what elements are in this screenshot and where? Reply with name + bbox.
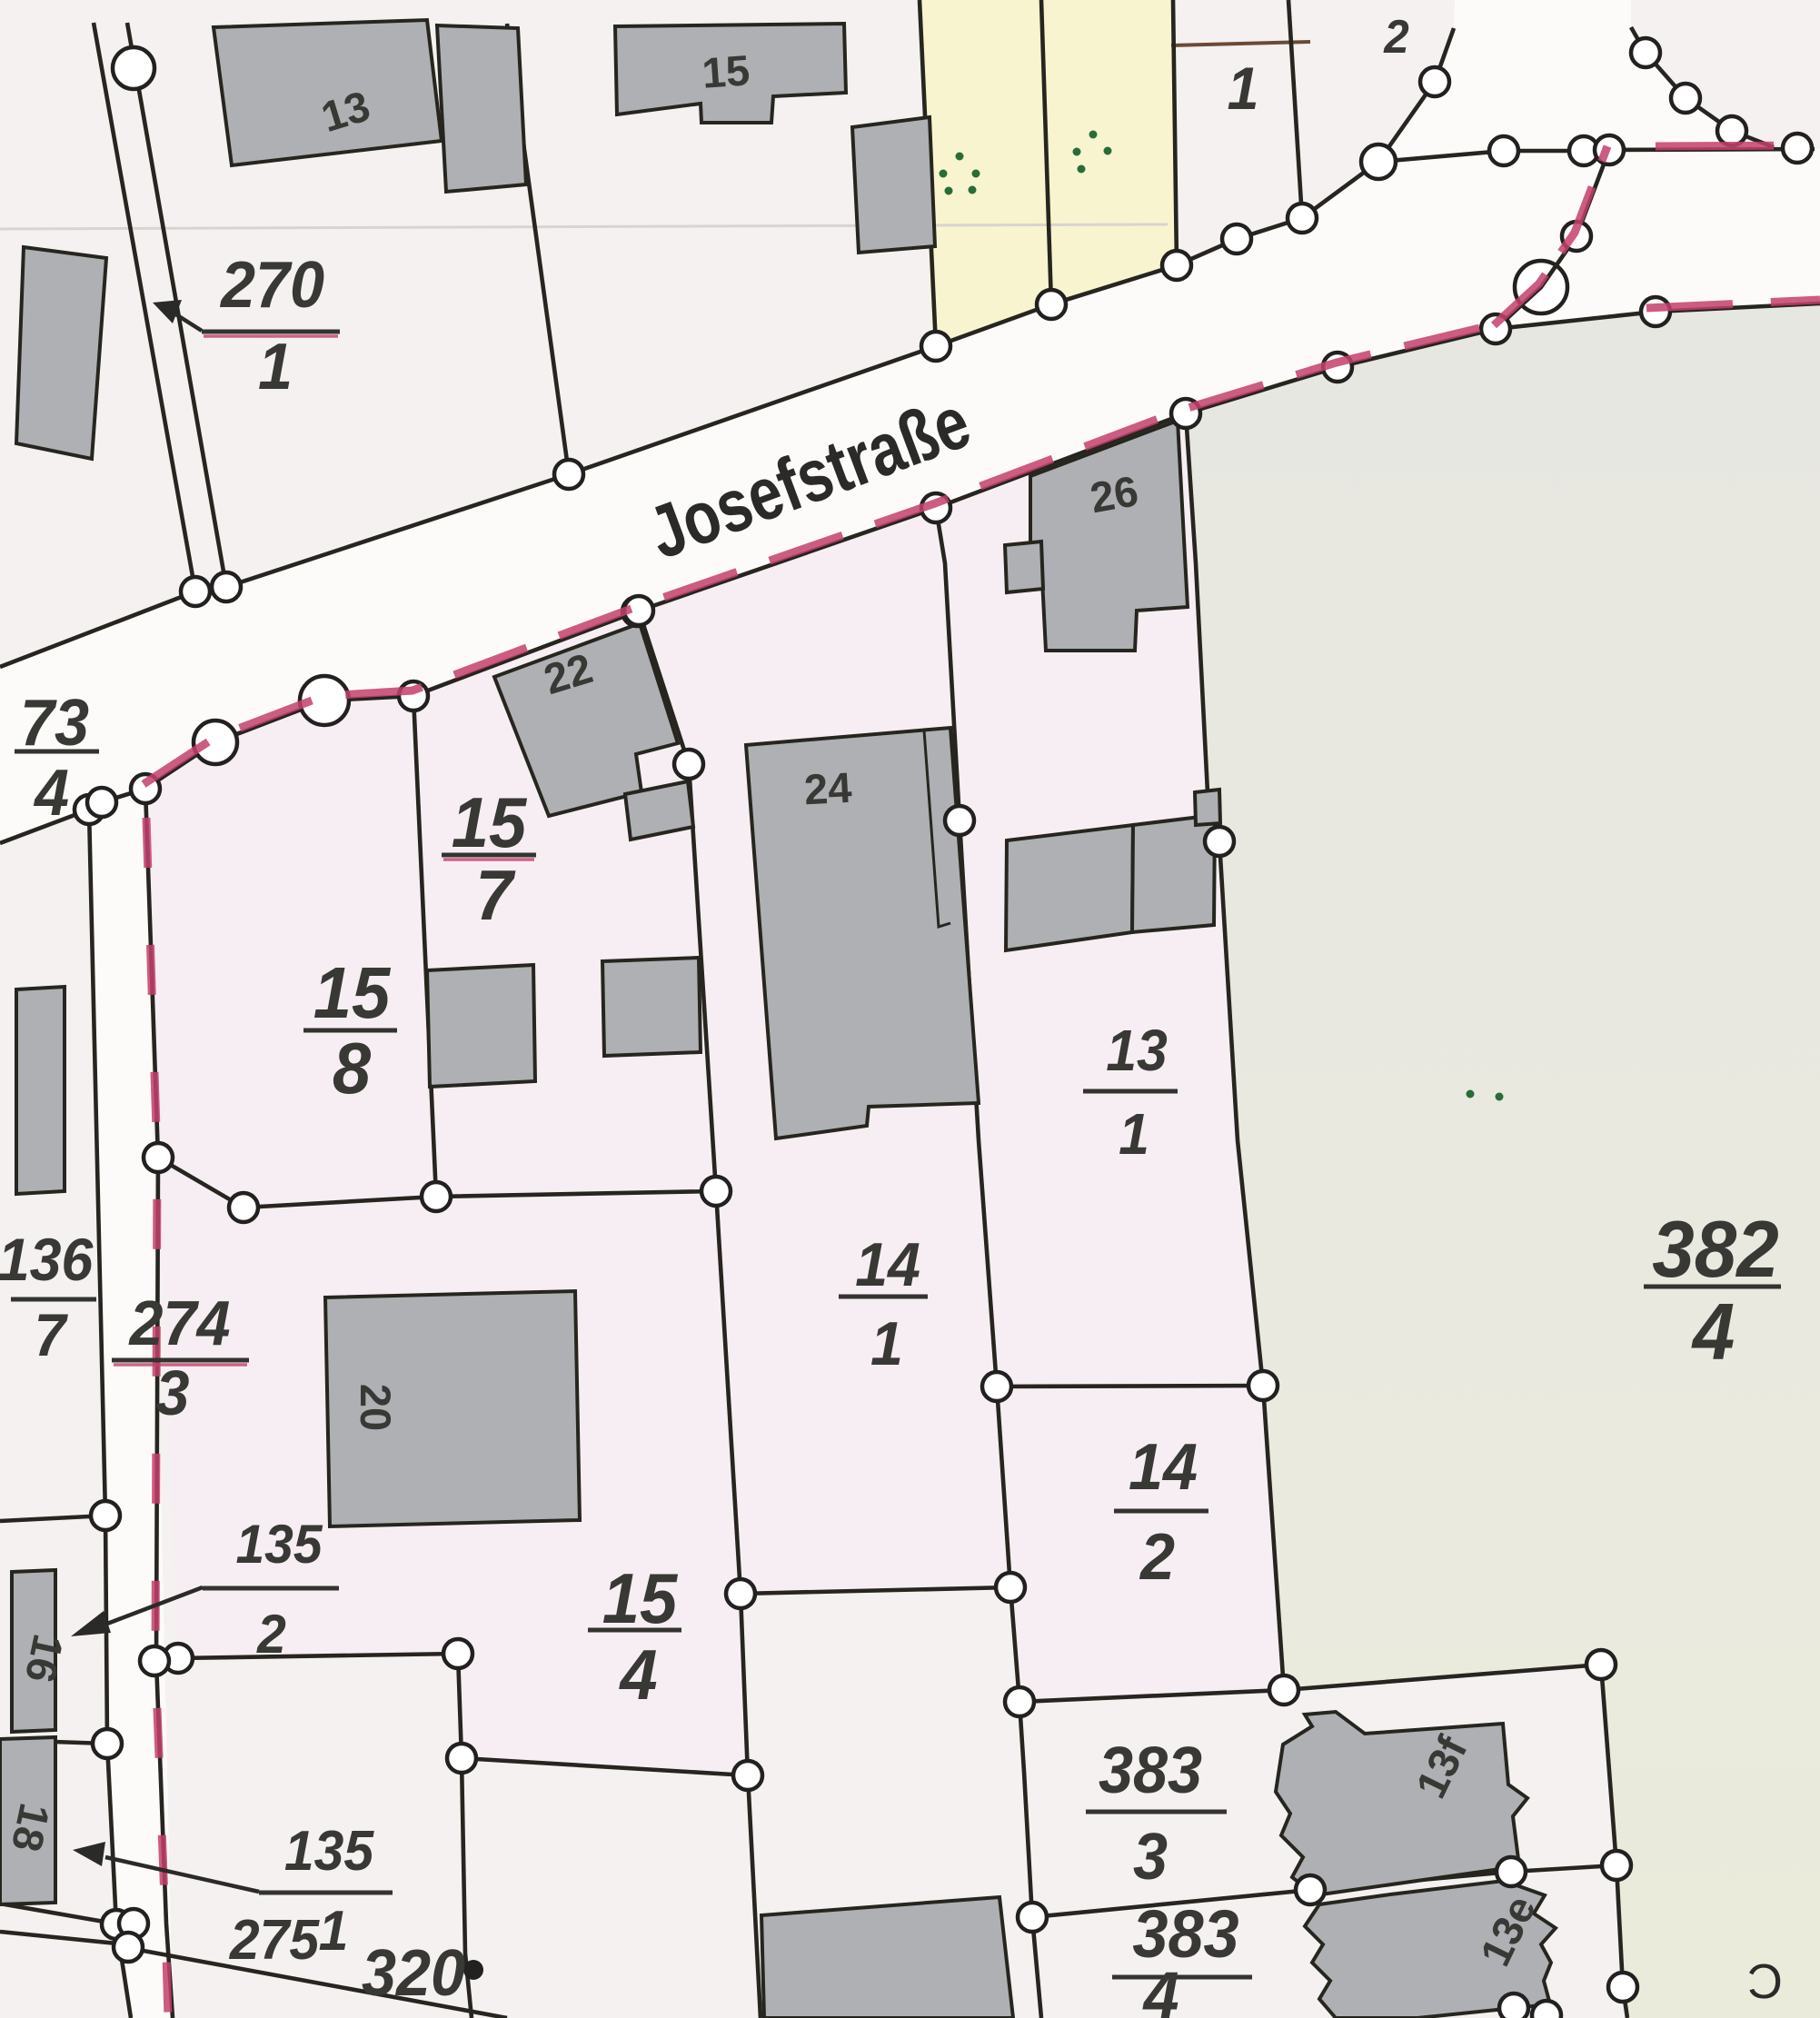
svg-text:14: 14 (1129, 1429, 1198, 1503)
svg-text:1: 1 (1228, 55, 1259, 123)
svg-text:135: 135 (284, 1819, 375, 1883)
svg-text:275: 275 (229, 1908, 321, 1972)
svg-text:320: 320 (362, 1935, 465, 2009)
svg-text:13: 13 (1106, 1019, 1168, 1084)
svg-text:20: 20 (352, 1384, 400, 1431)
svg-text:C: C (1747, 1953, 1783, 2008)
svg-text:24: 24 (803, 763, 853, 814)
svg-text:4: 4 (1142, 1959, 1179, 2018)
svg-text:2: 2 (1139, 1519, 1175, 1593)
svg-text:16: 16 (16, 1630, 74, 1686)
svg-text:7: 7 (35, 1302, 69, 1369)
svg-text:136: 136 (0, 1227, 94, 1294)
svg-text:2: 2 (1383, 10, 1408, 63)
svg-text:1: 1 (258, 329, 293, 403)
svg-text:1: 1 (870, 1310, 903, 1379)
svg-text:274: 274 (128, 1287, 231, 1358)
svg-text:2: 2 (256, 1605, 286, 1665)
svg-text:8: 8 (333, 1027, 372, 1108)
svg-text:4: 4 (1691, 1287, 1735, 1377)
svg-text:1: 1 (1119, 1102, 1149, 1168)
svg-text:26: 26 (1087, 466, 1142, 522)
svg-text:3: 3 (156, 1357, 190, 1428)
svg-text:4: 4 (33, 755, 69, 829)
svg-text:382: 382 (1652, 1205, 1778, 1294)
svg-text:73: 73 (20, 685, 89, 759)
svg-text:1: 1 (319, 1899, 349, 1963)
svg-text:15: 15 (313, 951, 392, 1033)
svg-text:383: 383 (1099, 1733, 1202, 1806)
svg-text:15: 15 (602, 1559, 679, 1638)
svg-text:14: 14 (855, 1231, 920, 1300)
svg-text:18: 18 (3, 1799, 60, 1855)
svg-text:3: 3 (1133, 1819, 1168, 1893)
svg-text:270: 270 (219, 247, 324, 321)
svg-text:7: 7 (475, 856, 516, 935)
svg-text:135: 135 (235, 1515, 323, 1576)
svg-text:15: 15 (701, 45, 751, 97)
svg-text:4: 4 (618, 1635, 657, 1715)
svg-text:15: 15 (452, 783, 528, 862)
